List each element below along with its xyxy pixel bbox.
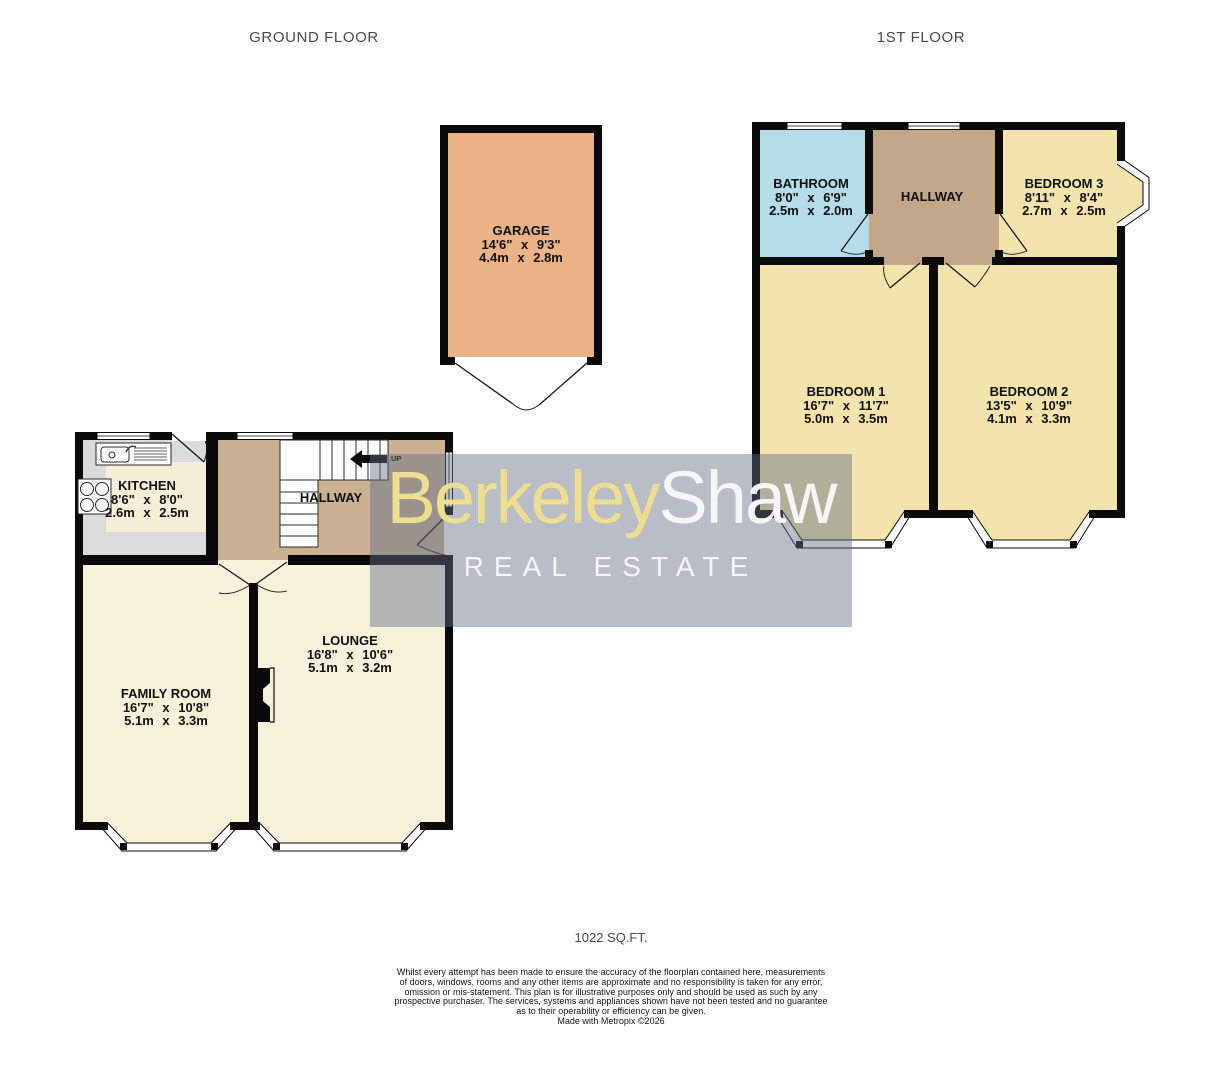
agency-watermark: BerkeleyShaw REAL ESTATE (370, 454, 852, 627)
ground-hallway-window (237, 433, 293, 440)
bathroom-label: BATHROOM 8'0" x 6'9" 2.5m x 2.0m (769, 177, 853, 218)
bedroom-divider-wall (929, 265, 938, 510)
lounge-label: LOUNGE 16'8" x 10'6" 5.1m x 3.2m (307, 634, 393, 675)
bedroom1-label: BEDROOM 1 16'7" x 11'7" 5.0m x 3.5m (803, 385, 889, 426)
bathroom-window (787, 123, 842, 130)
ground-hallway-label: HALLWAY (300, 491, 362, 505)
first-hallway-label: HALLWAY (901, 190, 963, 204)
agency-tagline: REAL ESTATE (370, 552, 852, 582)
kitchen-window (97, 433, 150, 440)
first-floor-title: 1ST FLOOR (877, 29, 965, 46)
total-area-text: 1022 SQ.FT. (575, 930, 648, 945)
bedroom2-label: BEDROOM 2 13'5" x 10'9" 4.1m x 3.3m (986, 385, 1072, 426)
garage-label: GARAGE 14'6" x 9'3" 4.4m x 2.8m (479, 224, 563, 265)
garage-plan (440, 125, 602, 410)
ground-floor-title: GROUND FLOOR (249, 29, 379, 46)
hallway-bedroom3-wall (995, 130, 1003, 214)
kitchen-hallway-wall (206, 440, 218, 565)
kitchen-label: KITCHEN 8'6" x 8'0" 2.6m x 2.5m (105, 479, 189, 520)
sink-icon (96, 443, 171, 465)
first-hallway-window (908, 123, 960, 130)
bathroom-hallway-wall (865, 130, 873, 214)
disclaimer-text: Whilst every attempt has been made to en… (394, 968, 827, 1027)
family-room-label: FAMILY ROOM 16'7" x 10'8" 5.1m x 3.3m (121, 687, 211, 728)
family-lounge-divider-wall (249, 583, 258, 822)
bedroom3-label: BEDROOM 3 8'11" x 8'4" 2.7m x 2.5m (1022, 177, 1106, 218)
garage-doors (455, 363, 587, 410)
floorplan-page: GROUND FLOOR 1ST FLOOR GARAGE 14'6" x 9'… (0, 0, 1223, 1080)
agency-brand-name: BerkeleyShaw (370, 456, 852, 540)
